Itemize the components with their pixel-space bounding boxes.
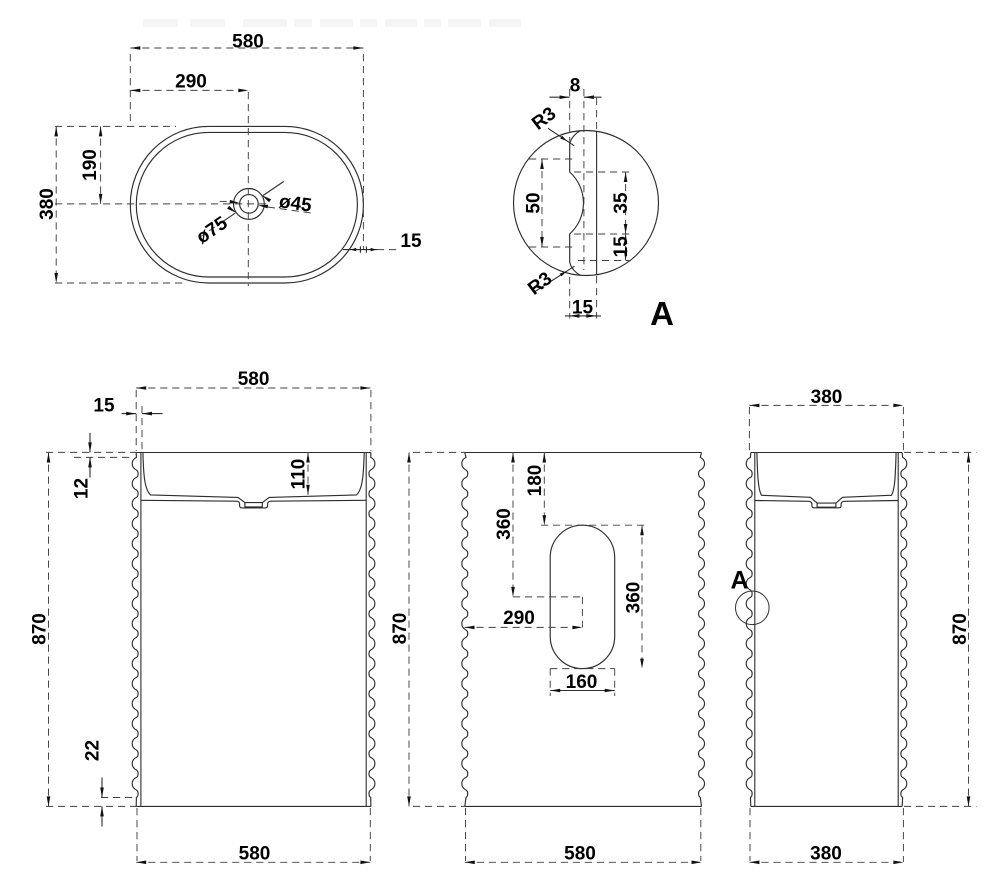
svg-text:580: 580 [564, 844, 596, 865]
svg-text:8: 8 [570, 76, 581, 97]
svg-text:15: 15 [400, 231, 422, 252]
svg-text:180: 180 [525, 465, 546, 497]
svg-text:12: 12 [72, 478, 93, 499]
svg-text:ø75: ø75 [193, 212, 232, 248]
svg-text:ø45: ø45 [278, 191, 314, 216]
svg-text:290: 290 [503, 608, 535, 629]
svg-text:A: A [730, 566, 748, 594]
svg-text:A: A [650, 295, 674, 332]
svg-text:190: 190 [80, 149, 101, 181]
svg-text:380: 380 [810, 844, 842, 865]
svg-text:360: 360 [624, 582, 645, 614]
svg-text:15: 15 [611, 236, 632, 258]
svg-text:380: 380 [37, 188, 58, 220]
svg-text:50: 50 [524, 192, 545, 213]
svg-text:R3: R3 [528, 103, 560, 134]
svg-text:580: 580 [238, 369, 270, 390]
svg-text:580: 580 [232, 32, 264, 53]
svg-text:870: 870 [950, 613, 971, 645]
svg-text:R3: R3 [524, 268, 556, 299]
svg-text:22: 22 [83, 740, 104, 761]
svg-text:580: 580 [239, 844, 271, 865]
svg-text:360: 360 [494, 508, 515, 540]
svg-text:290: 290 [175, 72, 207, 93]
svg-text:870: 870 [30, 613, 51, 645]
svg-text:15: 15 [93, 396, 115, 417]
svg-text:380: 380 [811, 387, 843, 408]
svg-text:35: 35 [611, 192, 632, 214]
svg-text:15: 15 [572, 298, 594, 319]
svg-text:110: 110 [289, 459, 310, 490]
svg-text:160: 160 [566, 672, 598, 693]
svg-text:870: 870 [390, 613, 411, 645]
